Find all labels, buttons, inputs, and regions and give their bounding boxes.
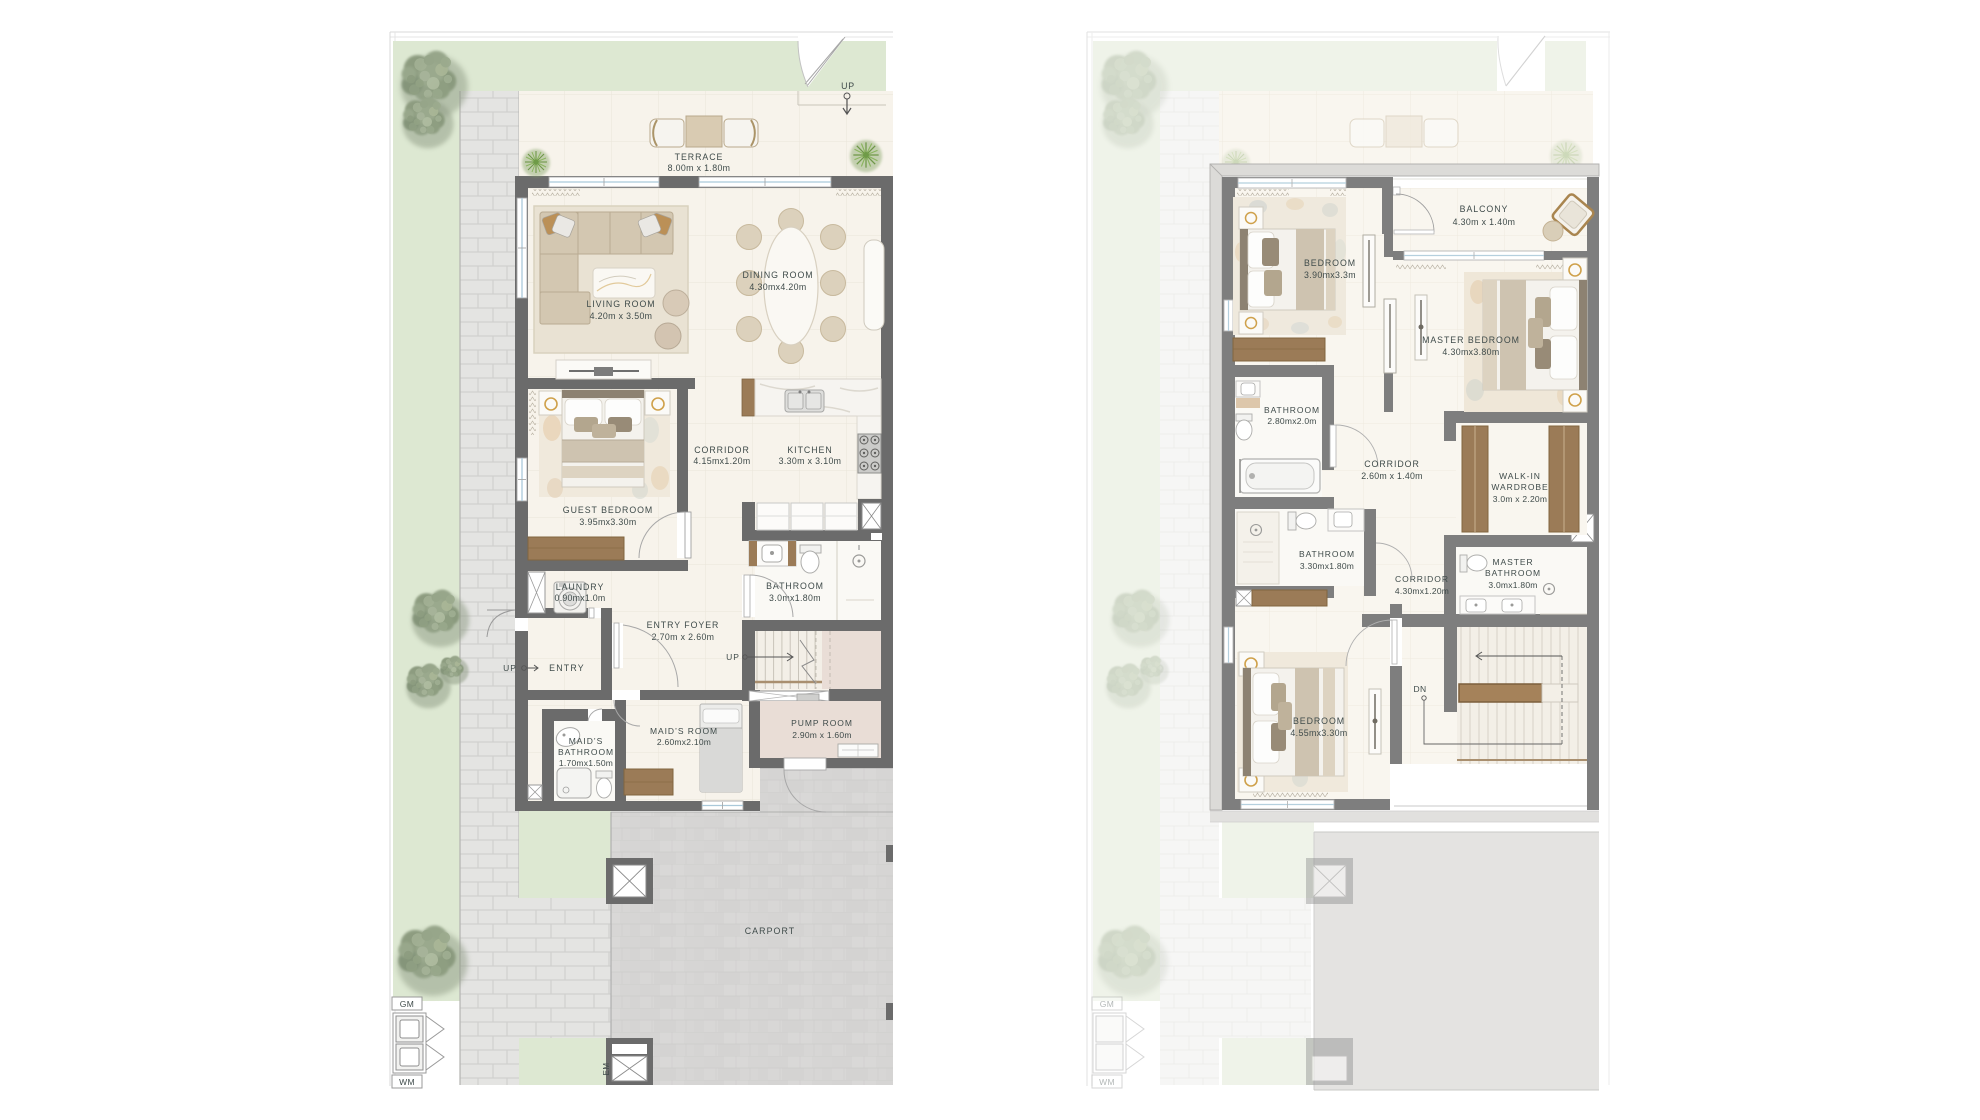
svg-text:BATHROOM: BATHROOM (558, 747, 614, 757)
svg-text:TERRACE: TERRACE (675, 152, 724, 162)
svg-text:KITCHEN: KITCHEN (787, 445, 832, 455)
svg-text:EM: EM (602, 1063, 611, 1076)
svg-text:WALK-IN: WALK-IN (1499, 471, 1541, 481)
svg-text:UP: UP (726, 652, 740, 662)
svg-text:WARDROBE: WARDROBE (1491, 482, 1548, 492)
svg-text:3.90mx3.3m: 3.90mx3.3m (1304, 270, 1356, 280)
svg-text:DN: DN (1414, 684, 1427, 694)
svg-text:1.70mx1.50m: 1.70mx1.50m (559, 758, 613, 768)
svg-text:UP: UP (503, 663, 517, 673)
svg-text:4.30mx4.20m: 4.30mx4.20m (749, 282, 806, 292)
svg-text:UP: UP (841, 81, 855, 91)
svg-text:4.30m x 1.40m: 4.30m x 1.40m (1453, 217, 1516, 227)
svg-text:MASTER: MASTER (1492, 557, 1533, 567)
svg-text:ENTRY: ENTRY (549, 663, 585, 673)
svg-text:CORRIDOR: CORRIDOR (694, 445, 750, 455)
svg-text:WM: WM (1099, 1077, 1115, 1087)
svg-text:2.90m x 1.60m: 2.90m x 1.60m (792, 730, 851, 740)
svg-text:BEDROOM: BEDROOM (1304, 258, 1356, 268)
svg-text:BATHROOM: BATHROOM (1299, 549, 1355, 559)
svg-text:BATHROOM: BATHROOM (1485, 568, 1541, 578)
svg-text:MASTER BEDROOM: MASTER BEDROOM (1422, 335, 1520, 345)
svg-text:3.0mx1.80m: 3.0mx1.80m (1488, 580, 1537, 590)
svg-text:CORRIDOR: CORRIDOR (1395, 574, 1449, 584)
svg-text:3.0mx1.80m: 3.0mx1.80m (769, 593, 821, 603)
svg-text:3.30m x 3.10m: 3.30m x 3.10m (779, 456, 842, 466)
svg-text:CORRIDOR: CORRIDOR (1364, 459, 1420, 469)
svg-text:0.90mx1.0m: 0.90mx1.0m (555, 593, 606, 603)
svg-text:4.30mx1.20m: 4.30mx1.20m (1395, 586, 1449, 596)
svg-text:4.20m x 3.50m: 4.20m x 3.50m (590, 311, 653, 321)
svg-text:BEDROOM: BEDROOM (1293, 716, 1345, 726)
svg-text:MAID’S: MAID’S (569, 736, 604, 746)
svg-text:CARPORT: CARPORT (745, 926, 796, 936)
svg-text:4.30mx3.80m: 4.30mx3.80m (1442, 347, 1499, 357)
svg-text:DINING ROOM: DINING ROOM (742, 270, 813, 280)
svg-text:3.30mx1.80m: 3.30mx1.80m (1300, 561, 1354, 571)
svg-text:GUEST BEDROOM: GUEST BEDROOM (563, 505, 653, 515)
svg-text:PUMP ROOM: PUMP ROOM (791, 718, 853, 728)
svg-text:3.95mx3.30m: 3.95mx3.30m (579, 517, 636, 527)
svg-text:ENTRY FOYER: ENTRY FOYER (647, 620, 720, 630)
svg-text:4.55mx3.30m: 4.55mx3.30m (1290, 728, 1347, 738)
svg-text:GM: GM (1100, 999, 1114, 1009)
svg-text:2.60mx2.10m: 2.60mx2.10m (657, 737, 711, 747)
svg-text:LIVING ROOM: LIVING ROOM (586, 299, 655, 309)
svg-text:LAUNDRY: LAUNDRY (556, 582, 605, 592)
svg-text:8.00m x 1.80m: 8.00m x 1.80m (668, 163, 731, 173)
svg-text:4.15mx1.20m: 4.15mx1.20m (693, 456, 750, 466)
svg-text:MAID’S ROOM: MAID’S ROOM (650, 726, 718, 736)
svg-text:WM: WM (399, 1077, 415, 1087)
svg-text:2.80mx2.0m: 2.80mx2.0m (1267, 416, 1316, 426)
svg-text:2.70m x 2.60m: 2.70m x 2.60m (652, 632, 715, 642)
svg-text:BALCONY: BALCONY (1460, 204, 1509, 214)
svg-text:2.60m x 1.40m: 2.60m x 1.40m (1361, 471, 1422, 481)
svg-text:GM: GM (400, 999, 414, 1009)
svg-text:BATHROOM: BATHROOM (1264, 405, 1320, 415)
svg-text:3.0m x 2.20m: 3.0m x 2.20m (1493, 494, 1548, 504)
